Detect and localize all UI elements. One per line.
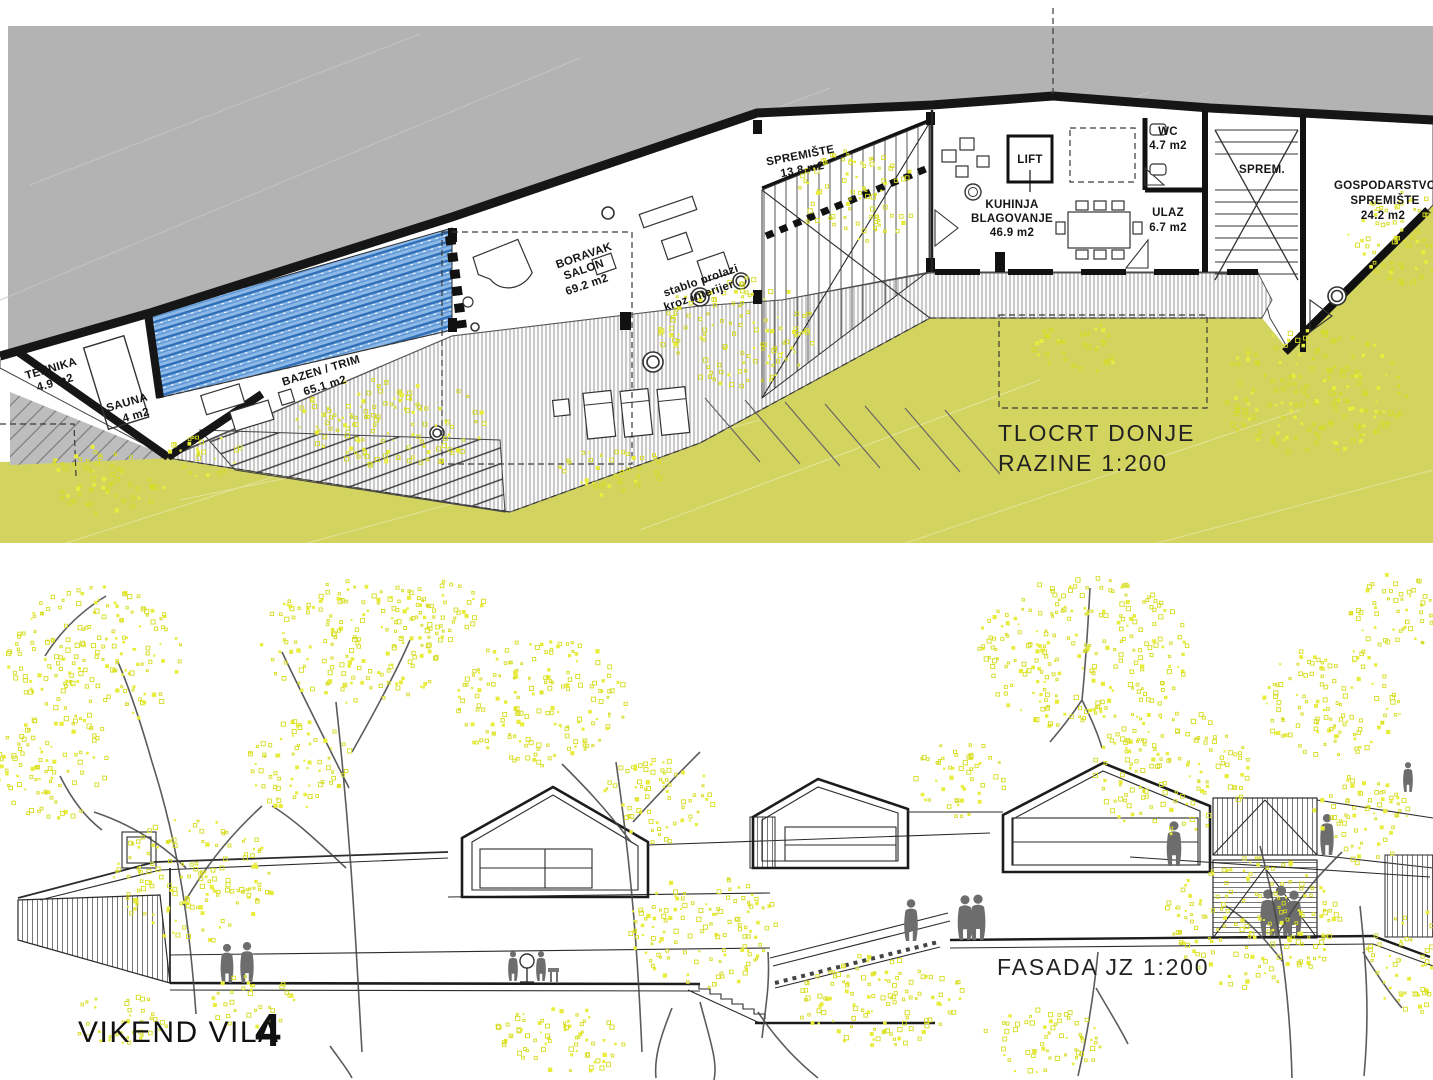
site-plan: TEHNIKA 4.9 m2 SAUNA 8.4 m2 BAZEN / TRIM… <box>0 8 1433 545</box>
room-label-gospodarstvo2: SPREMIŠTE <box>1350 194 1419 207</box>
plan-title-line2: RAZINE 1:200 <box>998 450 1168 476</box>
room-label-sprem: SPREM. <box>1239 164 1285 176</box>
plan-title-line1: TLOCRT DONJE <box>998 420 1195 446</box>
room-label-gospodarstvo: GOSPODARSTVO <box>1334 180 1433 192</box>
room-area-kuhinja: 46.9 m2 <box>990 227 1034 239</box>
room-label-lift: LIFT <box>1017 154 1042 166</box>
footer: VIKEND VILA 4 <box>78 1004 281 1056</box>
facade-drawing: FASADA JZ 1:200 <box>0 573 1433 1080</box>
terrace-lines <box>170 893 770 991</box>
project-title: VIKEND VILA <box>78 1016 280 1049</box>
house-2 <box>750 779 1003 868</box>
drawing-canvas: TEHNIKA 4.9 m2 SAUNA 8.4 m2 BAZEN / TRIM… <box>0 0 1433 1080</box>
house-1 <box>462 787 990 897</box>
facade-title: FASADA JZ 1:200 <box>997 954 1209 980</box>
room-area-wc: 4.7 m2 <box>1149 140 1187 152</box>
room-area-gospodarstvo: 24.2 m2 <box>1361 210 1405 222</box>
room-label-kuhinja2: BLAGOVANJE <box>971 213 1053 225</box>
room-area-ulaz: 6.7 m2 <box>1149 222 1187 234</box>
room-label-wc: WC <box>1158 126 1178 138</box>
facade-retaining-wall <box>18 895 170 983</box>
presentation-board: TEHNIKA 4.9 m2 SAUNA 8.4 m2 BAZEN / TRIM… <box>0 0 1433 1080</box>
project-number: 4 <box>255 1004 281 1056</box>
room-label-kuhinja: KUHINJA <box>985 199 1038 211</box>
room-label-ulaz: ULAZ <box>1152 207 1184 219</box>
